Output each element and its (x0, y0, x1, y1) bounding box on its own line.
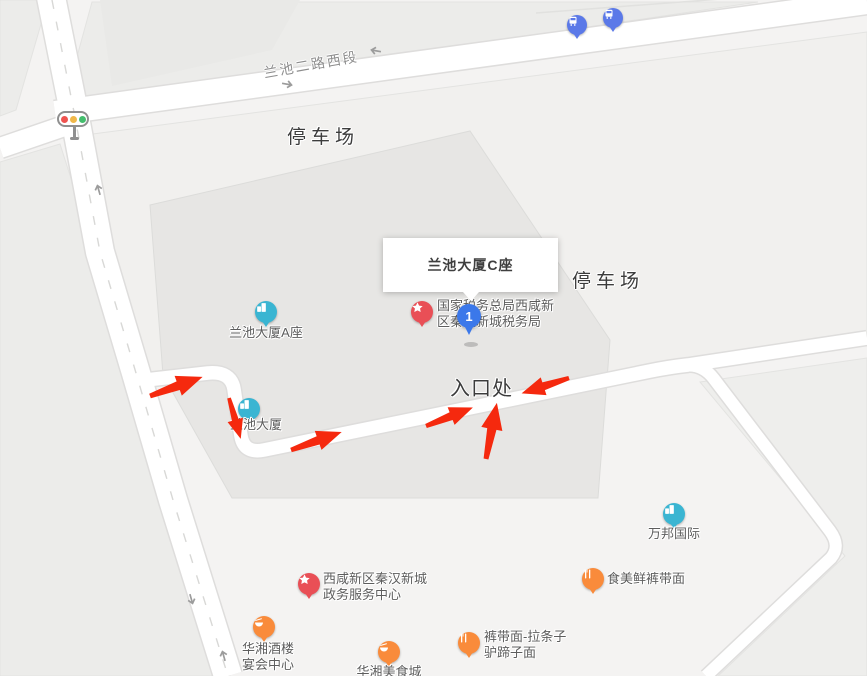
map-label-layer: 停车场停车场入口处兰池二路西段兰池大厦A座兰池大厦万邦国际国家税务总局西咸新 区… (0, 0, 867, 676)
parking-lot-label-top: 停车场 (287, 122, 359, 149)
poi-huaxiang-food-city-label: 华湘美食城 (356, 664, 421, 676)
map-canvas[interactable]: 停车场停车场入口处兰池二路西段兰池大厦A座兰池大厦万邦国际国家税务总局西咸新 区… (0, 0, 867, 676)
bus-stop-pin-2-pin[interactable] (603, 8, 623, 28)
infobox-lanchi-tower-c[interactable]: 兰池大厦C座 (383, 238, 558, 292)
infobox-title: 兰池大厦C座 (427, 255, 513, 275)
poi-huaxiang-banquet-hall-label: 华湘酒楼 宴会中心 (242, 641, 294, 673)
selected-marker-number: 1 (465, 309, 472, 324)
bus-stop-pin-1-pin[interactable] (567, 15, 587, 35)
poi-lanchi-tower-a-label: 兰池大厦A座 (229, 325, 303, 341)
road-label-lanchi-2nd-road: 兰池二路西段 (262, 46, 360, 82)
traffic-light-base (70, 137, 79, 140)
traffic-light-green (79, 116, 86, 123)
poi-government-service-center-pin[interactable] (298, 573, 320, 595)
selected-location-marker[interactable]: 1 (457, 304, 481, 328)
parking-lot-label-right: 停车场 (572, 266, 644, 293)
poi-lanchi-tower-label: 兰池大厦 (230, 417, 282, 433)
poi-kudaimian-noodles-label: 裤带面-拉条子 驴蹄子面 (484, 629, 566, 661)
poi-government-service-center-label: 西咸新区秦汉新城 政务服务中心 (323, 571, 427, 603)
traffic-light-yellow (70, 116, 77, 123)
selected-marker-tail (464, 325, 474, 335)
poi-shimeixian-noodles-label: 食美鲜裤带面 (607, 571, 685, 587)
poi-tax-bureau-label: 国家税务总局西咸新 区秦汉新城税务局 (437, 298, 554, 330)
poi-tax-bureau-pin[interactable] (411, 301, 433, 323)
selected-marker-shadow (464, 342, 478, 347)
poi-kudaimian-noodles-pin[interactable] (458, 632, 480, 654)
poi-huaxiang-food-city-pin[interactable] (378, 641, 400, 663)
infobox-pointer (463, 292, 479, 301)
poi-huaxiang-banquet-hall-pin[interactable] (253, 616, 275, 638)
entrance-label: 入口处 (450, 372, 513, 401)
poi-wanbang-international-label: 万邦国际 (648, 526, 700, 542)
traffic-light-red (61, 116, 68, 123)
poi-shimeixian-noodles-pin[interactable] (582, 568, 604, 590)
traffic-light-body (57, 111, 89, 127)
poi-lanchi-tower-a-pin[interactable] (255, 301, 277, 323)
traffic-light-stem (73, 127, 76, 137)
traffic-light-icon (57, 111, 91, 140)
poi-wanbang-international-pin[interactable] (663, 503, 685, 525)
